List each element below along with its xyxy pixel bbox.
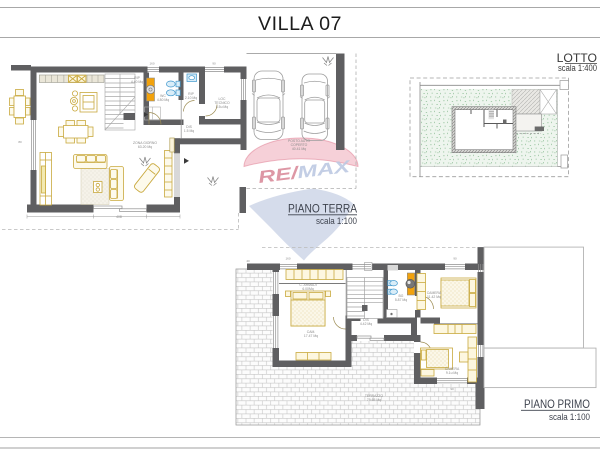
svg-text:63.20 Mq: 63.20 Mq bbox=[138, 145, 152, 149]
svg-text:5.87 Mq: 5.87 Mq bbox=[395, 298, 407, 302]
svg-text:40: 40 bbox=[246, 259, 250, 263]
svg-text:PIANO PRIMO: PIANO PRIMO bbox=[524, 397, 590, 411]
svg-text:1.5 Mq: 1.5 Mq bbox=[184, 129, 194, 133]
svg-text:4.80 Mq: 4.80 Mq bbox=[157, 98, 169, 102]
svg-text:90: 90 bbox=[212, 62, 216, 66]
svg-text:scala 1:100: scala 1:100 bbox=[549, 412, 590, 422]
svg-text:90: 90 bbox=[450, 387, 454, 391]
svg-text:160: 160 bbox=[285, 257, 290, 261]
svg-text:VILLA 07: VILLA 07 bbox=[258, 14, 342, 35]
svg-text:11.42 Mq: 11.42 Mq bbox=[427, 295, 441, 299]
svg-text:160: 160 bbox=[149, 62, 154, 66]
svg-text:40.41 Mq: 40.41 Mq bbox=[292, 147, 306, 151]
svg-text:2.10 Mq: 2.10 Mq bbox=[185, 96, 197, 100]
svg-text:80: 80 bbox=[18, 140, 22, 144]
svg-text:PIANO TERRA: PIANO TERRA bbox=[288, 201, 358, 215]
svg-text:408: 408 bbox=[116, 215, 122, 219]
svg-text:6.00Mq: 6.00Mq bbox=[302, 287, 313, 291]
svg-text:4.42 Mq: 4.42 Mq bbox=[360, 322, 372, 326]
svg-text:17.47 Mq: 17.47 Mq bbox=[304, 334, 318, 338]
svg-text:79.65 Mq: 79.65 Mq bbox=[367, 398, 381, 402]
svg-text:4.40 Mq: 4.40 Mq bbox=[131, 80, 143, 84]
svg-text:9.1u Mq: 9.1u Mq bbox=[446, 371, 458, 375]
svg-text:scala 1:400: scala 1:400 bbox=[558, 63, 597, 73]
svg-text:4.5u Mq: 4.5u Mq bbox=[216, 105, 228, 109]
svg-text:90: 90 bbox=[453, 257, 457, 261]
svg-text:scala 1:100: scala 1:100 bbox=[316, 216, 357, 226]
